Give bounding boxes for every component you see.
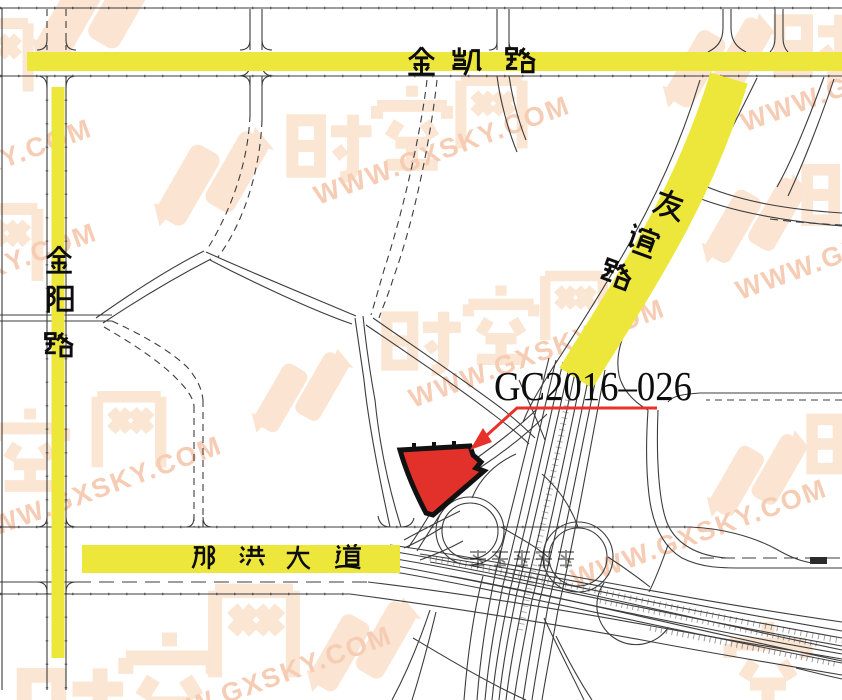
svg-text:GC2016–026: GC2016–026 [494,363,692,409]
